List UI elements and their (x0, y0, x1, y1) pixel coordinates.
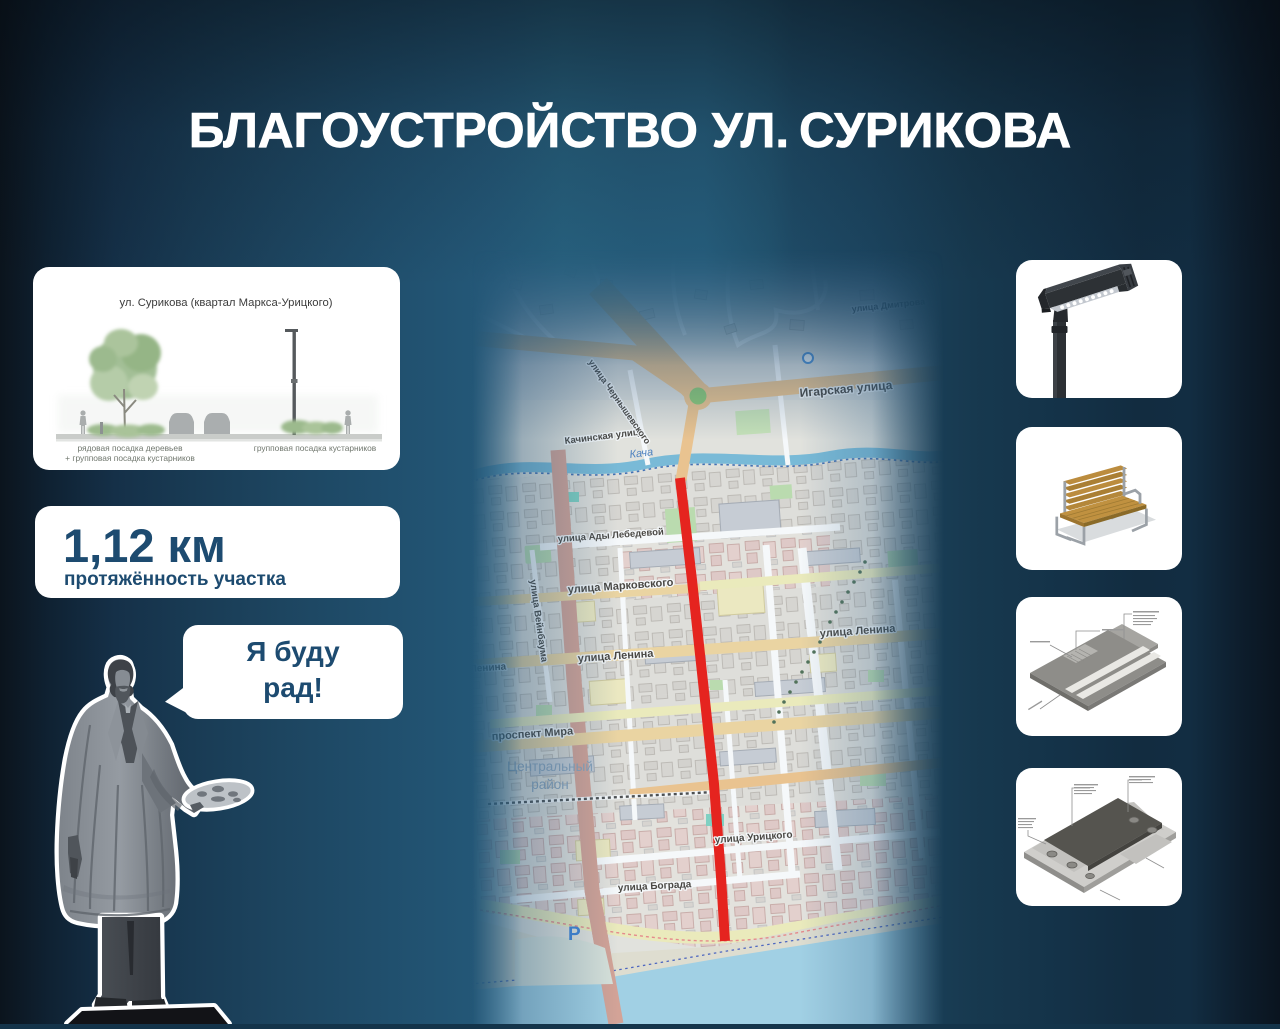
svg-text:+ групповая посадка кустарнико: + групповая посадка кустарников (65, 453, 195, 463)
svg-text:рядовая посадка деревьев: рядовая посадка деревьев (77, 443, 183, 453)
svg-text:ул. Сурикова (квартал Маркса-У: ул. Сурикова (квартал Маркса-Урицкого) (119, 297, 332, 309)
svg-text:групповая посадка кустарников: групповая посадка кустарников (254, 443, 377, 453)
